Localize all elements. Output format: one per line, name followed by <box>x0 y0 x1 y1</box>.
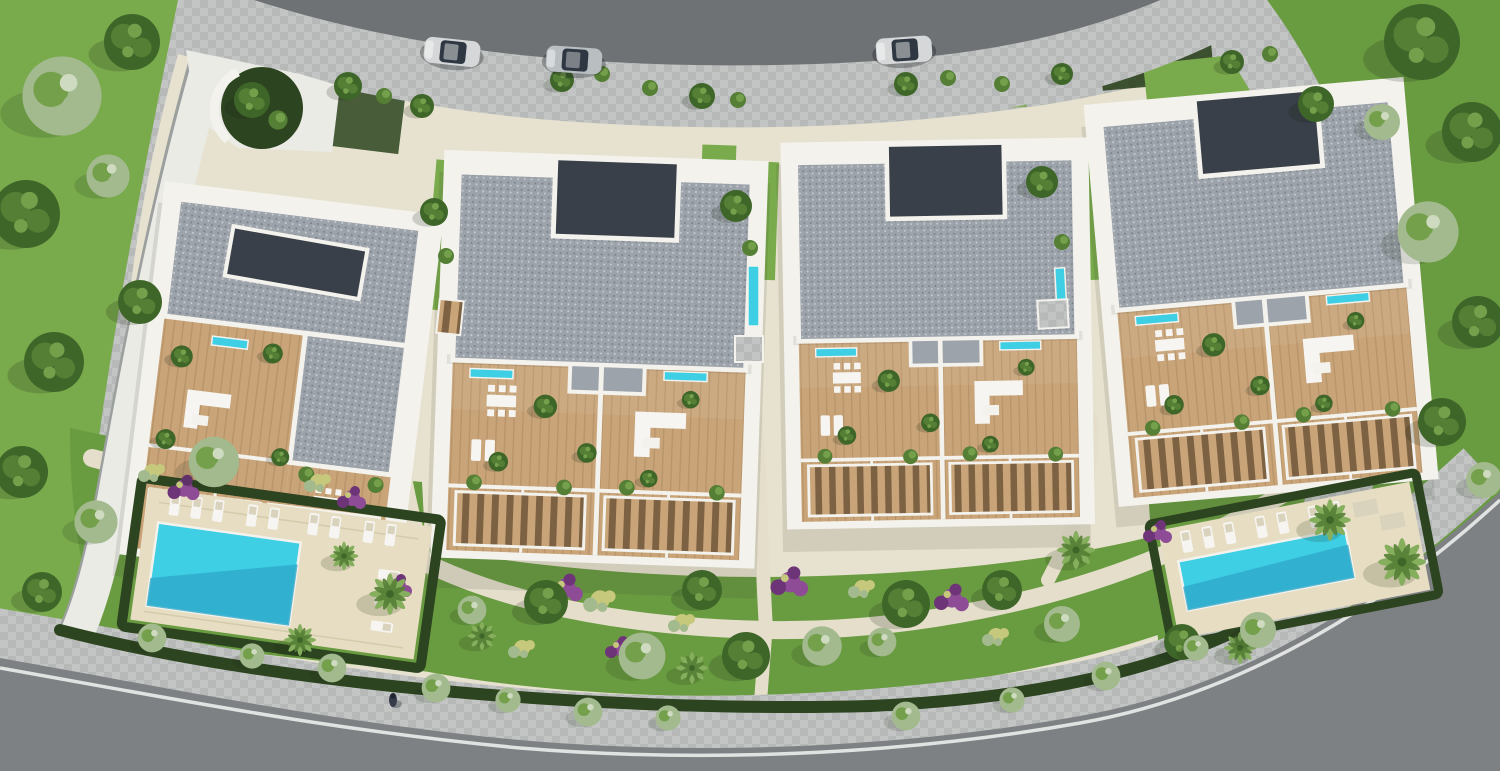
site-plan-render <box>0 0 1500 771</box>
paved-pad <box>735 336 763 362</box>
bush <box>742 240 758 256</box>
street-shrub <box>730 92 746 108</box>
paved-pad <box>1037 299 1068 329</box>
water-feature <box>748 266 759 326</box>
street-shrub <box>1262 46 1278 62</box>
street-shrub <box>940 70 956 86</box>
street-shrub <box>376 88 392 104</box>
street-shrub <box>642 80 658 96</box>
bush <box>438 248 454 264</box>
bush <box>1054 234 1070 250</box>
aerial-render-canvas <box>0 0 1500 771</box>
stairs <box>436 299 463 335</box>
planter-bush <box>268 110 287 129</box>
street-shrub <box>994 76 1010 92</box>
apartment-building-4 <box>1084 77 1439 507</box>
